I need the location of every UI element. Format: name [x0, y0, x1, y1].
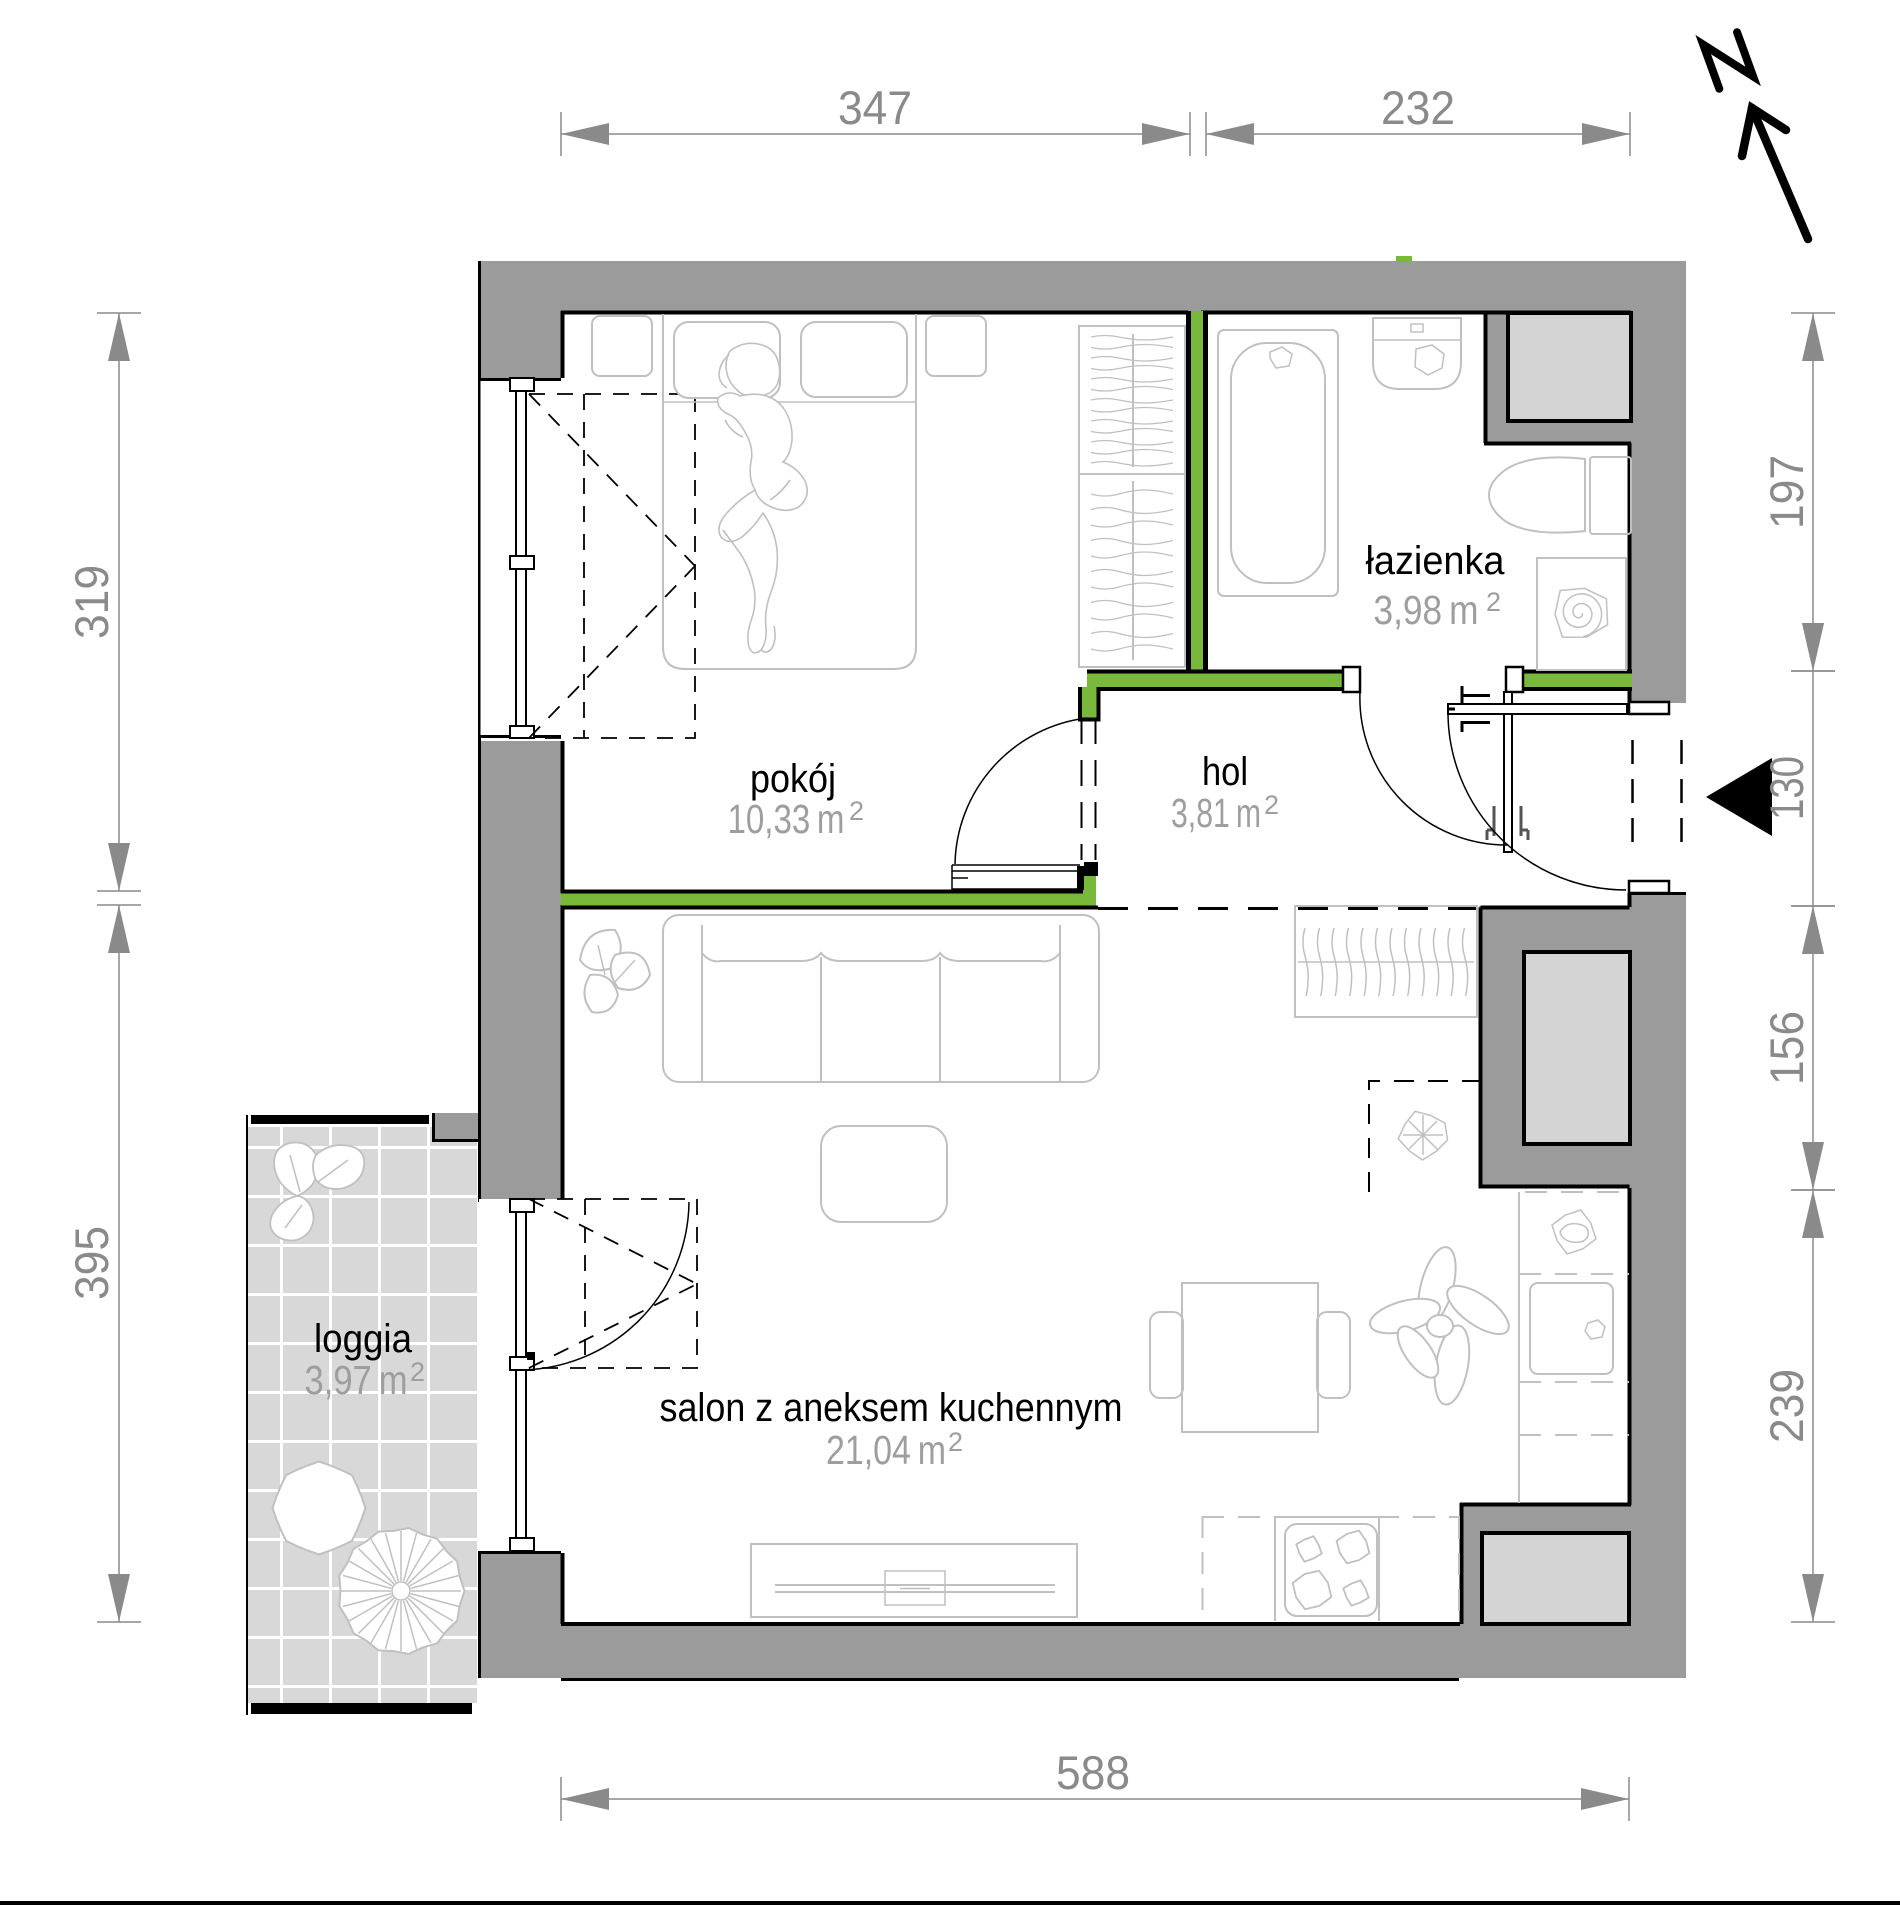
svg-text:3,97 m: 3,97 m [305, 1357, 408, 1403]
svg-text:hol: hol [1202, 750, 1248, 794]
svg-text:239: 239 [1760, 1369, 1813, 1443]
svg-text:3,81 m: 3,81 m [1171, 790, 1261, 836]
svg-text:10,33 m: 10,33 m [728, 796, 845, 842]
svg-text:588: 588 [1056, 1746, 1130, 1799]
svg-text:197: 197 [1760, 455, 1813, 529]
svg-text:loggia: loggia [314, 1317, 413, 1361]
svg-text:130: 130 [1760, 756, 1813, 820]
svg-text:pokój: pokój [750, 757, 836, 801]
svg-text:2: 2 [849, 796, 864, 826]
svg-text:salon z aneksem kuchennym: salon z aneksem kuchennym [660, 1386, 1123, 1430]
svg-text:395: 395 [65, 1226, 118, 1300]
svg-text:347: 347 [838, 81, 912, 134]
svg-text:2: 2 [410, 1357, 425, 1387]
svg-text:2: 2 [1486, 587, 1501, 617]
svg-text:3,98 m: 3,98 m [1374, 587, 1479, 633]
svg-text:156: 156 [1760, 1011, 1813, 1085]
svg-text:2: 2 [948, 1427, 963, 1457]
svg-text:łazienka: łazienka [1366, 539, 1506, 583]
svg-text:232: 232 [1381, 81, 1455, 134]
svg-text:2: 2 [1264, 790, 1279, 820]
svg-text:319: 319 [65, 565, 118, 639]
svg-text:21,04 m: 21,04 m [826, 1427, 946, 1473]
